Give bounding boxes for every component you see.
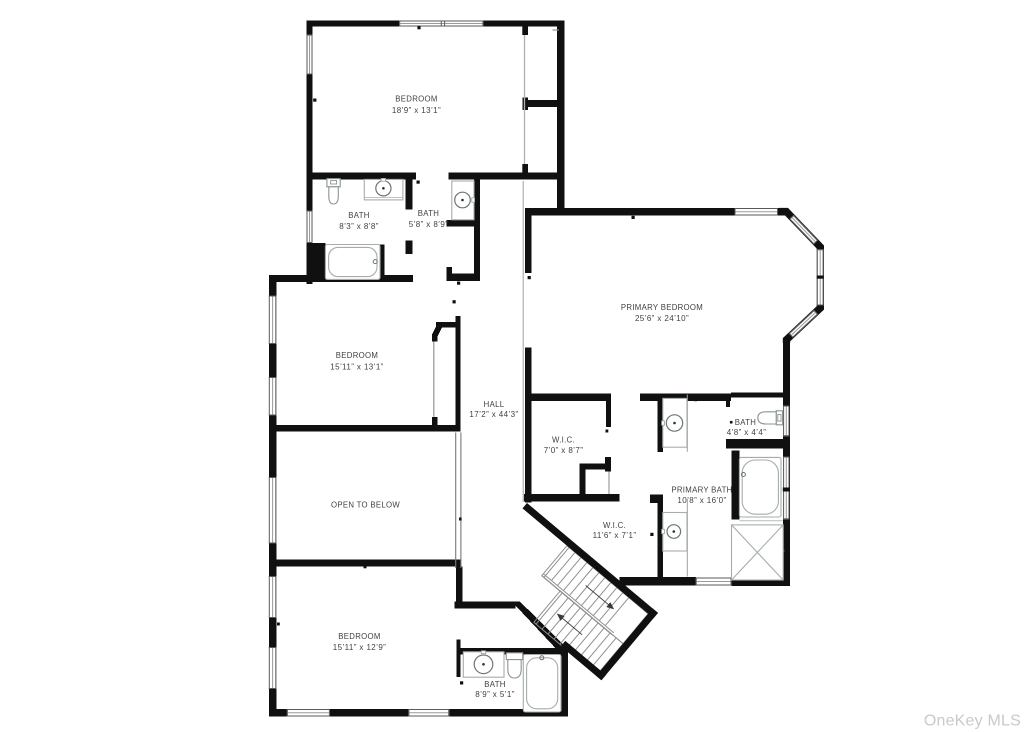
svg-text:BATH: BATH [418, 209, 439, 218]
svg-text:25’6” x 24’10”: 25’6” x 24’10” [635, 314, 689, 323]
svg-text:W.I.C.: W.I.C. [603, 521, 626, 530]
svg-text:5’8” x 8’9”: 5’8” x 8’9” [409, 220, 449, 229]
svg-text:OneKey MLS: OneKey MLS [924, 713, 1021, 730]
svg-text:W.I.C.: W.I.C. [552, 436, 575, 445]
svg-text:BEDROOM: BEDROOM [338, 632, 380, 641]
svg-text:8’3” x 8’8”: 8’3” x 8’8” [339, 222, 379, 231]
svg-text:PRIMARY BATH: PRIMARY BATH [671, 486, 732, 495]
svg-text:4’8” x 4’4”: 4’8” x 4’4” [727, 428, 767, 437]
svg-text:PRIMARY BEDROOM: PRIMARY BEDROOM [621, 303, 703, 312]
svg-text:BEDROOM: BEDROOM [395, 95, 437, 104]
svg-text:15’11” x 13’1”: 15’11” x 13’1” [330, 363, 383, 372]
svg-text:11’6” x 7’1”: 11’6” x 7’1” [593, 531, 637, 540]
svg-text:BATH: BATH [348, 211, 369, 220]
svg-text:BEDROOM: BEDROOM [336, 351, 378, 360]
svg-text:OPEN TO BELOW: OPEN TO BELOW [331, 501, 400, 510]
svg-text:BATH: BATH [484, 680, 505, 689]
svg-text:18’9” x 13’1”: 18’9” x 13’1” [392, 106, 441, 115]
svg-text:8’9” x 5’1”: 8’9” x 5’1” [475, 690, 515, 699]
svg-text:HALL: HALL [484, 400, 505, 409]
svg-text:17’2” x 44’3”: 17’2” x 44’3” [469, 410, 518, 419]
svg-text:BATH: BATH [735, 418, 756, 427]
svg-text:7’0” x 8’7”: 7’0” x 8’7” [544, 446, 584, 455]
svg-text:15’11” x 12’9”: 15’11” x 12’9” [333, 643, 386, 652]
svg-text:10’8” x 16’0”: 10’8” x 16’0” [677, 496, 726, 505]
